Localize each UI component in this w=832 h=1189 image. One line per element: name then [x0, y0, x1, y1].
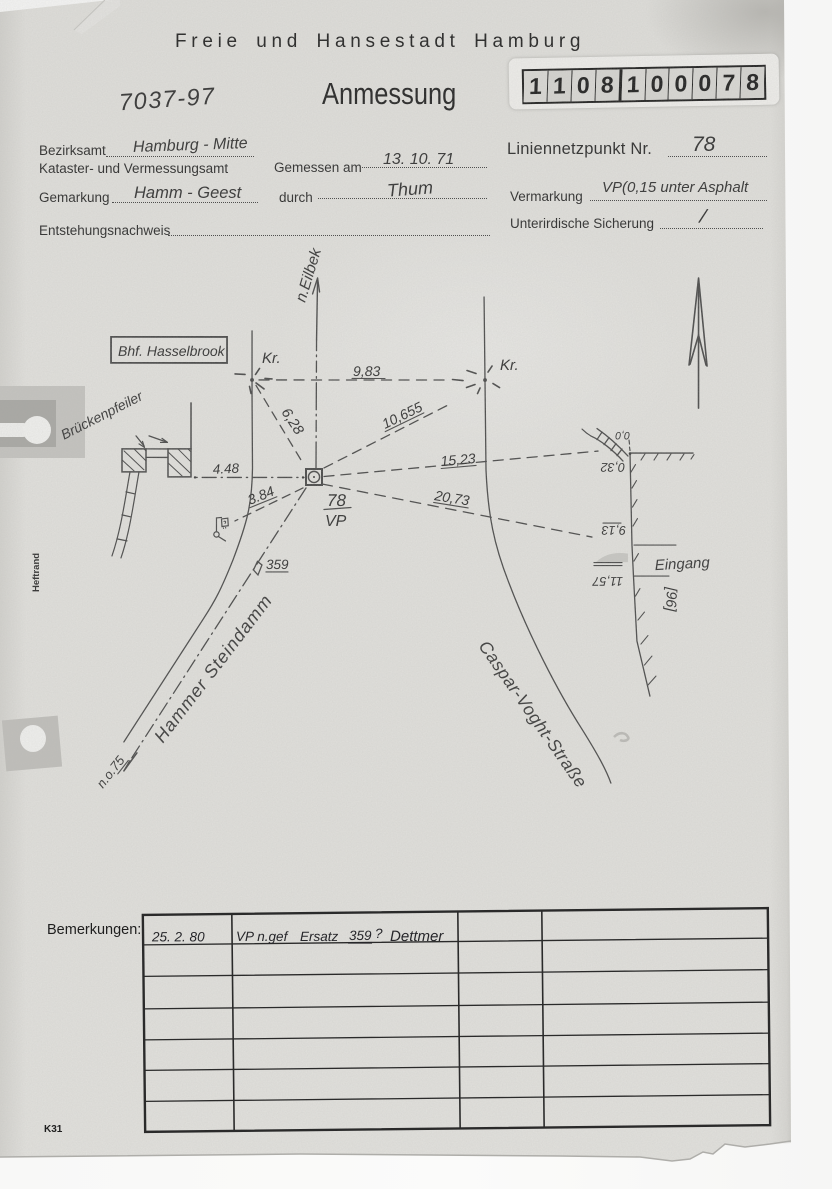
svg-text:Dettmer: Dettmer: [390, 928, 444, 945]
svg-text:Ersatz: Ersatz: [300, 929, 339, 944]
svg-text:25. 2. 80: 25. 2. 80: [151, 929, 205, 944]
svg-text:VP n.gef: VP n.gef: [236, 929, 289, 944]
svg-text:?: ?: [375, 926, 383, 941]
svg-text:359: 359: [349, 928, 372, 943]
